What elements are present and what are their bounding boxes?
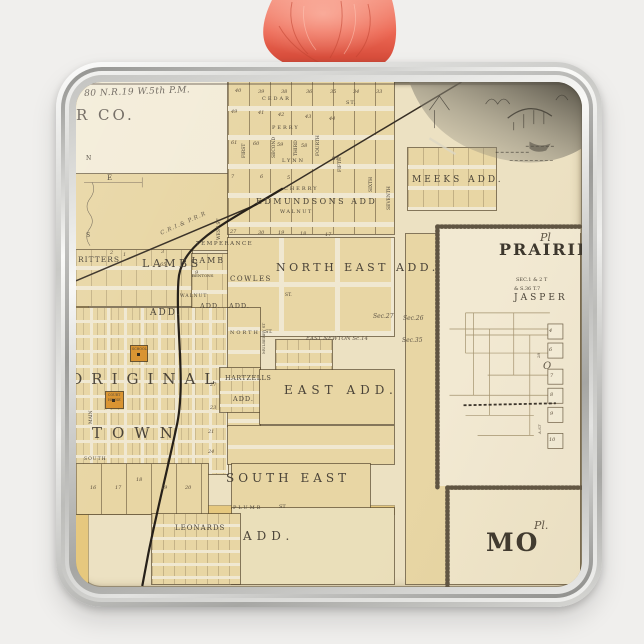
lot-number: 49: [231, 110, 237, 115]
lot-number: 60: [253, 142, 259, 147]
map-label: SCHOOL: [132, 348, 147, 351]
map-label: R CO.: [76, 108, 135, 123]
map-label: ADD.: [243, 530, 294, 542]
lot-number: 4: [549, 329, 552, 334]
map-label: FIFTH: [339, 157, 344, 172]
lot-number: 36: [306, 90, 312, 95]
map-label: WALNUT: [180, 295, 207, 300]
lot-number: 34: [353, 90, 359, 95]
map-label: MEEKS ADD.: [412, 176, 504, 185]
map-label: COWLES: [230, 276, 272, 283]
map-label: PLUMB: [233, 506, 262, 511]
map-label: COURT: [108, 394, 120, 397]
lot-number: 39: [258, 90, 264, 95]
map-label: Sec.35: [402, 338, 423, 344]
map-label: EDMUNDSONS ADD: [256, 198, 377, 206]
map-label: ADD.: [150, 309, 181, 318]
map-label: & S.36 T.7: [514, 287, 540, 292]
map-label: Sec.26: [403, 316, 424, 322]
map-label: LYNN: [282, 159, 305, 164]
lot-number: 58: [301, 144, 307, 149]
map-label: 28: [537, 353, 541, 358]
lot-number: 18: [136, 478, 142, 483]
lot-number: 59: [277, 143, 283, 148]
map-label: MAIN: [90, 410, 95, 424]
lot-number: 43: [305, 115, 311, 120]
lot-number: 7: [550, 374, 553, 379]
lot-number: 30: [258, 231, 264, 236]
map-label: HOUSE: [108, 399, 121, 402]
map-label: N: [86, 156, 91, 162]
lot-number: 7: [231, 175, 234, 180]
lot-number: 6: [260, 175, 263, 180]
map-label: ST.: [265, 330, 273, 335]
lot-number: 9: [195, 271, 198, 276]
lot-number: 38: [281, 90, 287, 95]
map-label: 80 N.R.19 W.5th P.M.: [84, 86, 190, 99]
map-label: FOURTH: [317, 135, 322, 156]
lot-number: 16: [90, 486, 96, 491]
lot-number: 33: [376, 90, 382, 95]
lot-number: 41: [258, 111, 264, 116]
lot-number: 42: [278, 113, 284, 118]
lot-number: 18: [300, 232, 306, 237]
map-label: SIXTH: [370, 177, 375, 192]
map-window: 80 N.R.19 W.5th P.M.R CO.NESCEDARST.PERR…: [76, 82, 582, 587]
map-label: A.ST: [538, 424, 542, 434]
lot-number: 1: [123, 253, 126, 258]
lot-number: 19: [278, 231, 284, 236]
map-label: NORTH: [230, 331, 260, 336]
map-label: O: [543, 362, 551, 372]
map-label: E: [107, 175, 112, 182]
map-label: WEST ST: [218, 218, 223, 240]
lot-number: 23: [210, 406, 216, 411]
map-label: Sec.27: [373, 314, 394, 320]
map-label: TOWN: [92, 426, 183, 441]
lot-number: 21: [208, 430, 214, 435]
map-label: ADD.: [229, 303, 250, 310]
map-label: ST.: [346, 101, 357, 106]
map-label: THIRD: [295, 140, 300, 156]
lot-number: 2: [110, 251, 113, 256]
lot-number: 61: [231, 141, 237, 146]
map-label: EAST ADD.: [284, 384, 398, 396]
map-label: SEVENTH: [388, 186, 393, 210]
lot-number: 3: [161, 250, 164, 255]
map-label: ST: [279, 505, 286, 510]
map-label: FIRST: [243, 144, 248, 158]
lot-number: 27: [210, 383, 216, 388]
map-label: SOUTH EAST: [226, 472, 350, 484]
lot-number: 17: [325, 233, 331, 238]
map-label: NORTH EAST ADD.: [276, 262, 439, 273]
lot-number: 9: [550, 412, 553, 417]
lot-number: 35: [330, 90, 336, 95]
map-label: EAST NEWTON Sc.14: [306, 337, 368, 343]
map-label: JASPER: [514, 294, 568, 303]
map-label: LAMB: [192, 257, 225, 265]
map-label: MO: [486, 530, 539, 555]
lot-number: 20: [185, 486, 191, 491]
ornament-frame: 80 N.R.19 W.5th P.M.R CO.NESCEDARST.PERR…: [56, 62, 602, 607]
lot-number: 10: [549, 438, 555, 443]
map-label: ADD.: [200, 303, 221, 310]
map-label: C.R.I.& P.R.R: [160, 212, 208, 237]
lot-number: 8: [550, 393, 553, 398]
map-label: PERRY: [272, 126, 300, 131]
lot-number: 19: [161, 486, 167, 491]
lot-number: 5: [287, 176, 290, 181]
map-label: PRAIRIE: [499, 242, 582, 258]
map-labels: 80 N.R.19 W.5th P.M.R CO.NESCEDARST.PERR…: [76, 82, 582, 587]
map-label: HARTZELLS: [225, 375, 271, 382]
lot-number: 65: [160, 263, 166, 268]
lot-number: 24: [208, 450, 214, 455]
map-label: S: [86, 233, 90, 239]
lot-number: 17: [115, 486, 121, 491]
map-label: WALNUT: [280, 210, 313, 215]
lot-number: 6: [549, 348, 552, 353]
map-label: SEC.1 & 2 T: [516, 278, 547, 283]
map-label: SOUTH: [84, 458, 107, 463]
map-label: ADD.: [233, 396, 254, 403]
map-label: LEONARDS: [175, 525, 225, 532]
map-label: ORIGINAL: [76, 372, 223, 387]
plat-map: 80 N.R.19 W.5th P.M.R CO.NESCEDARST.PERR…: [76, 82, 582, 587]
lot-number: 40: [235, 89, 241, 94]
map-label: CEDAR: [262, 97, 291, 102]
lot-number: 27: [230, 230, 236, 235]
map-label: ST.: [285, 294, 292, 299]
map-label: RITTERS: [78, 256, 120, 264]
map-label: MULBERRY ST: [262, 323, 266, 354]
map-label: CHERRY: [284, 187, 319, 192]
lot-number: 44: [329, 117, 335, 122]
map-label: TEMPERANCE: [196, 242, 253, 248]
